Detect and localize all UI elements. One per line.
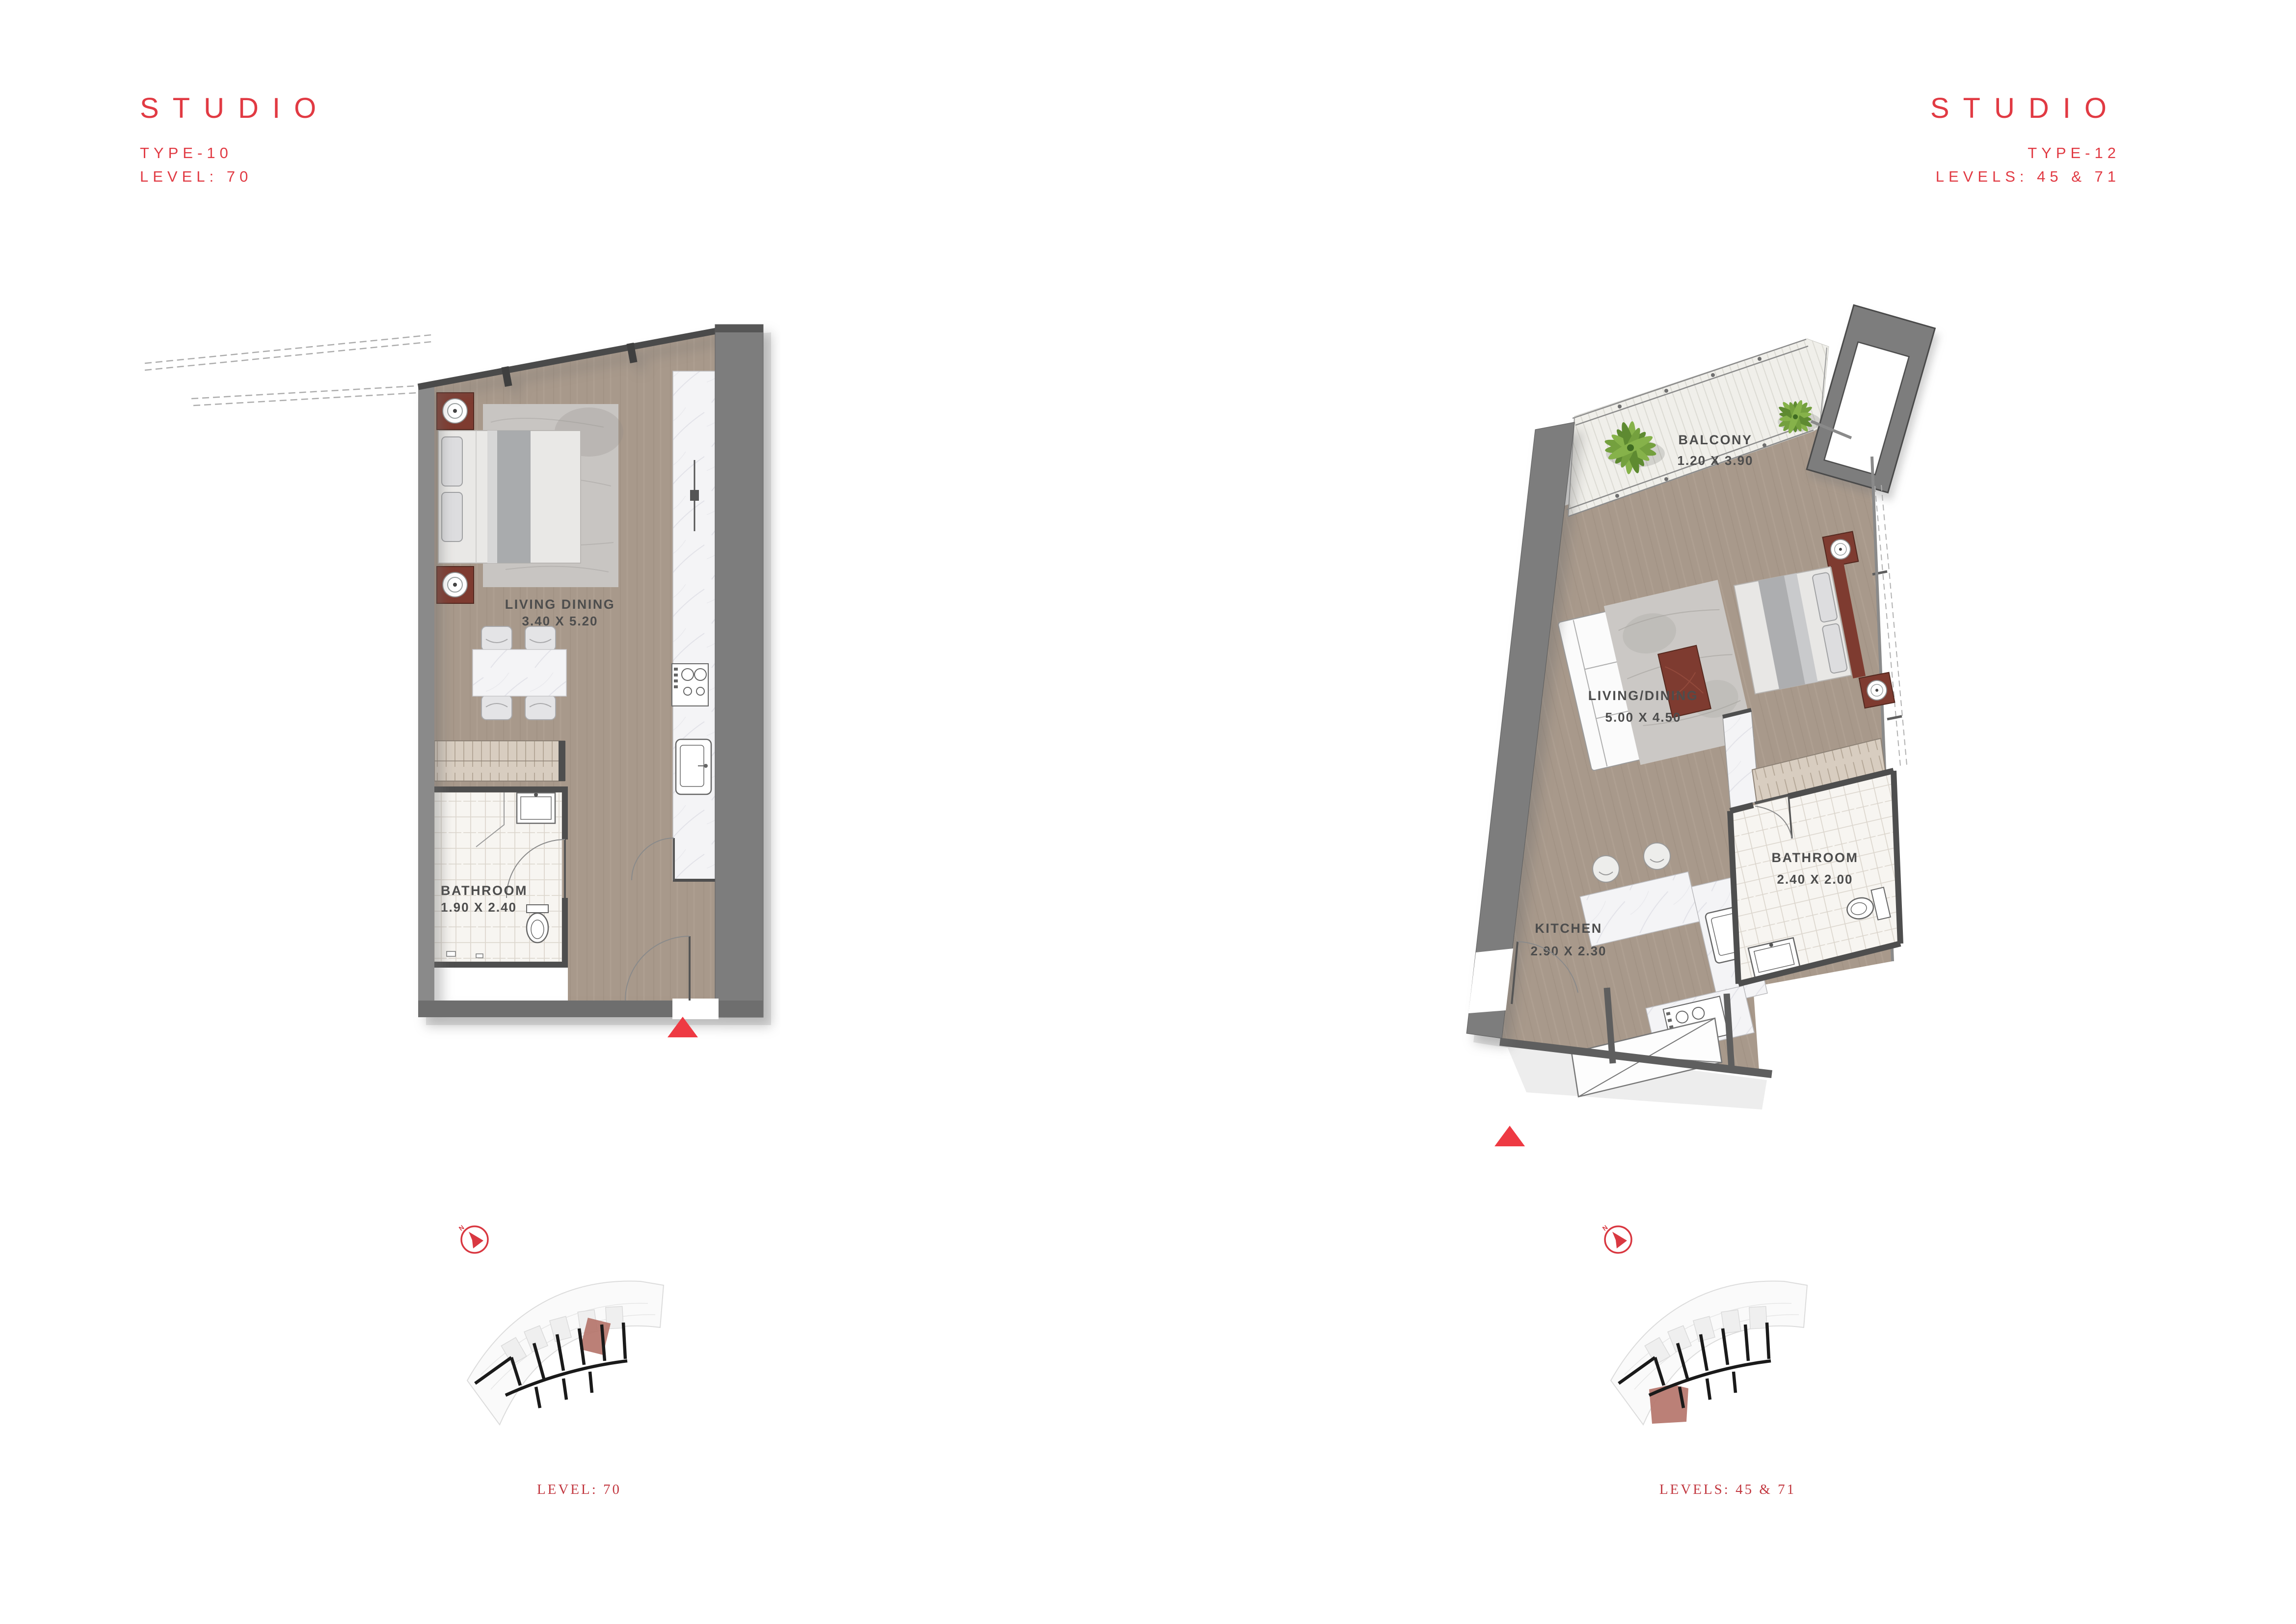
type-12-keyplan: N [1575,1213,1811,1434]
room-dims-bathroom: 2.40 X 2.00 [1777,872,1853,887]
room-dims-kitchen: 2.90 X 2.30 [1531,944,1607,958]
left-unit-title: STUDIO [140,94,330,123]
kitchen-sink [676,739,711,794]
building-keyplan [1611,1281,1807,1425]
room-label-living: LIVING/DINING [1588,688,1699,703]
kitchen-counter [672,371,715,880]
keyplan-caption: LEVEL: 70 [476,1482,682,1498]
bar-stool [1593,856,1619,882]
type-12-floor-plan: BALCONY 1.20 X 3.90 [1409,275,1988,1159]
wardrobe [434,741,565,781]
entrance-marker-icon [1495,1126,1525,1146]
service-niche [434,968,568,1001]
left-unit-type: TYPE-10 [140,141,330,165]
type-10-floor-plan: LIVING DINING 3.40 X 5.20 [133,275,780,1070]
brochure-page: STUDIO TYPE-10 LEVEL: 70 STUDIO TYPE-12 … [0,0,2296,1624]
entry-opening [1468,948,1513,1013]
right-unit-header: STUDIO TYPE-12 LEVELS: 45 & 71 [1930,94,2120,189]
bathroom-sink [517,793,555,823]
room-label-bathroom: BATHROOM [1772,850,1859,865]
room-dims-bathroom: 1.90 X 2.40 [441,900,517,915]
room-dims-living: 5.00 X 4.50 [1605,710,1682,725]
bathroom: BATHROOM 1.90 X 2.40 [434,786,568,968]
building-keyplan [467,1281,664,1425]
toilet [527,905,548,943]
entry-opening [672,999,719,1019]
room-label-kitchen: KITCHEN [1535,921,1602,936]
keyplan-caption: LEVELS: 45 & 71 [1625,1482,1831,1498]
cooktop [672,664,708,706]
right-unit-type: TYPE-12 [1930,141,2120,165]
compass-north-icon: N [457,1223,488,1253]
right-unit-level: LEVELS: 45 & 71 [1930,165,2120,189]
room-dims-balcony: 1.20 X 3.90 [1678,453,1754,468]
room-label-balcony: BALCONY [1679,433,1753,447]
nightstand [437,567,474,603]
bar-stool [1644,843,1670,869]
right-unit-title: STUDIO [1930,94,2120,123]
left-unit-header: STUDIO TYPE-10 LEVEL: 70 [140,94,330,189]
type-10-keyplan: N [432,1213,667,1434]
left-unit-level: LEVEL: 70 [140,165,330,189]
room-label-bathroom: BATHROOM [441,883,528,898]
compass-north-icon: N [1601,1223,1631,1253]
adjacent-balcony-outline [145,335,432,406]
bed [438,431,581,563]
nightstand [437,393,474,430]
room-label-living: LIVING DINING [505,597,615,612]
